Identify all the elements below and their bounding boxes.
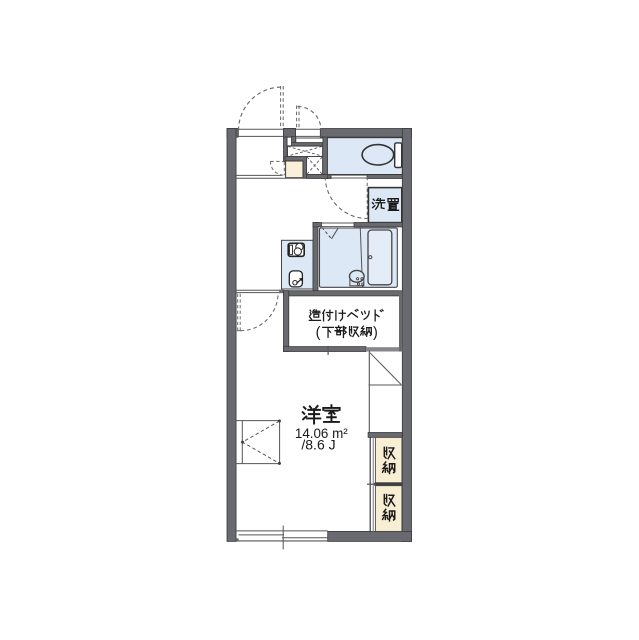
svg-text:): ) [373,325,378,341]
svg-text:(: ( [316,325,321,341]
svg-text:/8.6 J: /8.6 J [301,437,335,453]
